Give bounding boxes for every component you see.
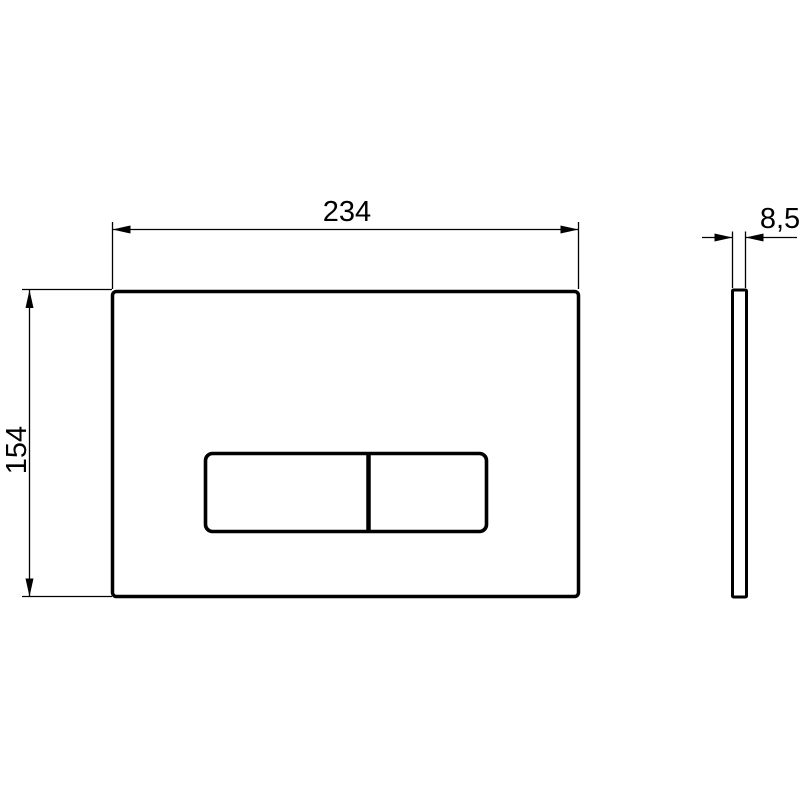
side-view <box>733 290 747 597</box>
front-view <box>113 292 579 597</box>
width-arrow-left-icon <box>113 226 131 234</box>
button-panel-outline <box>206 454 487 532</box>
thickness-dimension-label: 8,5 <box>760 203 800 235</box>
plate-outline <box>113 292 579 597</box>
height-dimension: 154 <box>1 290 112 597</box>
width-dimension-label: 234 <box>323 196 371 228</box>
width-arrow-right-icon <box>561 226 579 234</box>
technical-drawing-canvas: 234 154 8,5 <box>0 0 800 800</box>
thickness-dimension: 8,5 <box>702 203 800 288</box>
plate-profile-outline <box>733 290 747 597</box>
width-dimension: 234 <box>113 196 579 289</box>
height-dimension-label: 154 <box>1 426 33 474</box>
thickness-arrow-left-icon <box>715 234 733 242</box>
height-arrow-top-icon <box>26 290 34 308</box>
height-arrow-bottom-icon <box>26 579 34 597</box>
